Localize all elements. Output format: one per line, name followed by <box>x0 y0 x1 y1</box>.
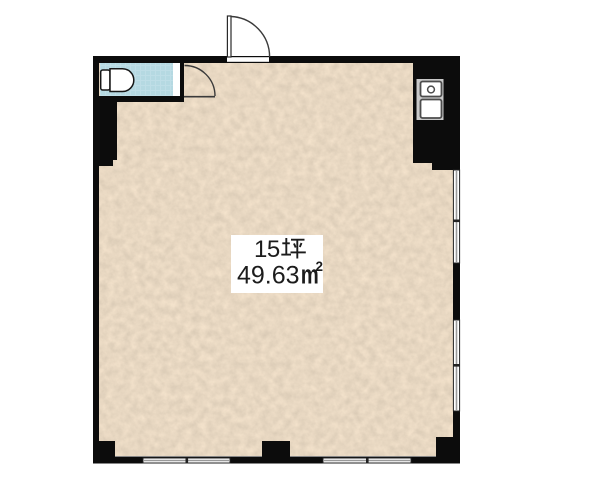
svg-text:49.63: 49.63 <box>237 262 300 290</box>
svg-text:2: 2 <box>316 259 324 274</box>
svg-text:15: 15 <box>254 236 280 263</box>
